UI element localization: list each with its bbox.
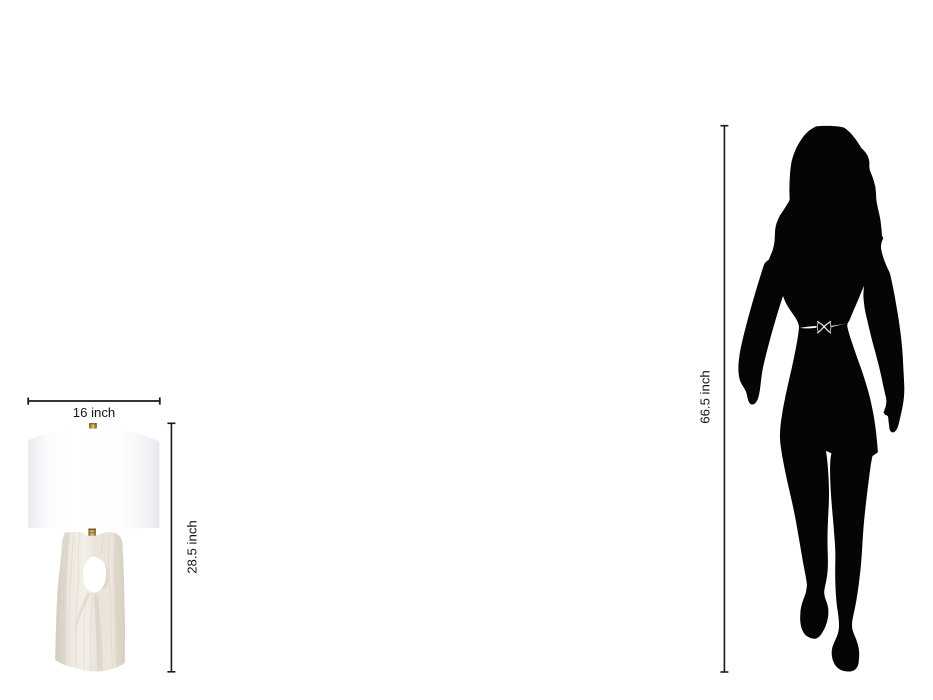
svg-text:66.5 inch: 66.5 inch [697, 370, 712, 424]
svg-text:16 inch: 16 inch [73, 405, 116, 420]
svg-text:28.5 inch: 28.5 inch [185, 520, 200, 574]
